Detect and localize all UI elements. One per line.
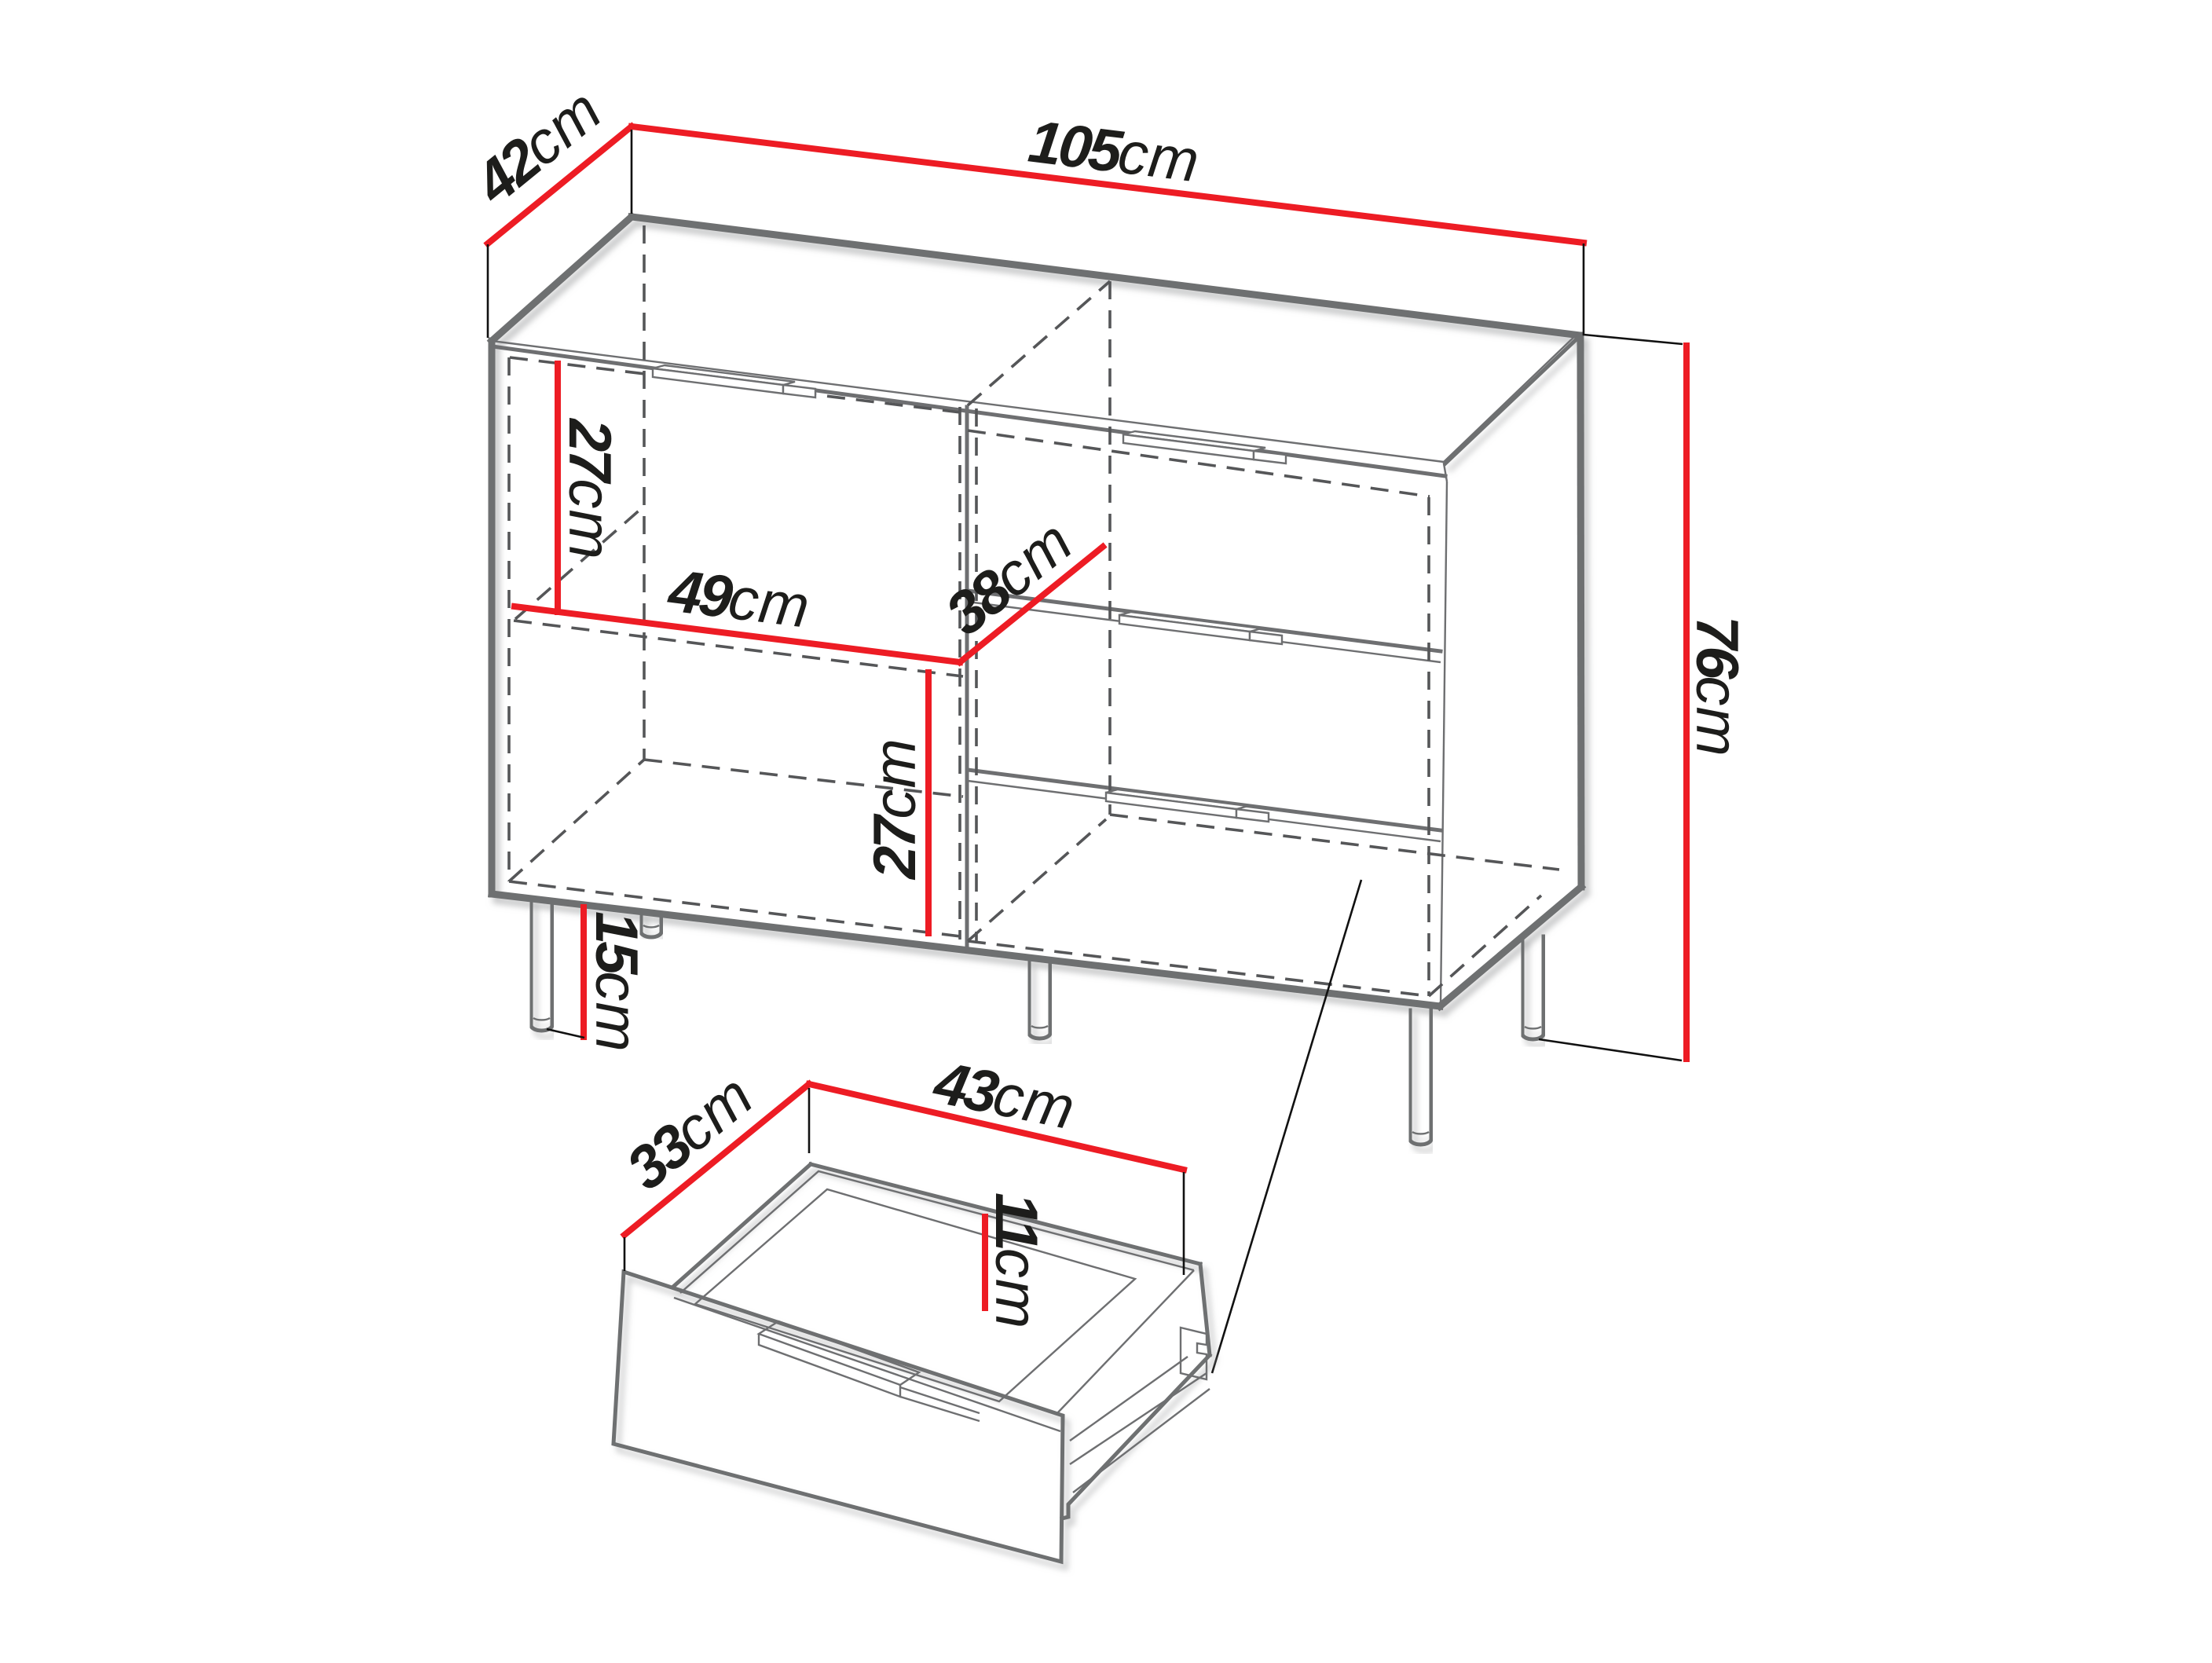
svg-text:27cm: 27cm (862, 738, 928, 881)
svg-text:76cm: 76cm (1683, 616, 1750, 757)
svg-text:15cm: 15cm (583, 911, 650, 1053)
svg-text:27cm: 27cm (556, 417, 623, 560)
svg-text:11cm: 11cm (983, 1192, 1049, 1329)
